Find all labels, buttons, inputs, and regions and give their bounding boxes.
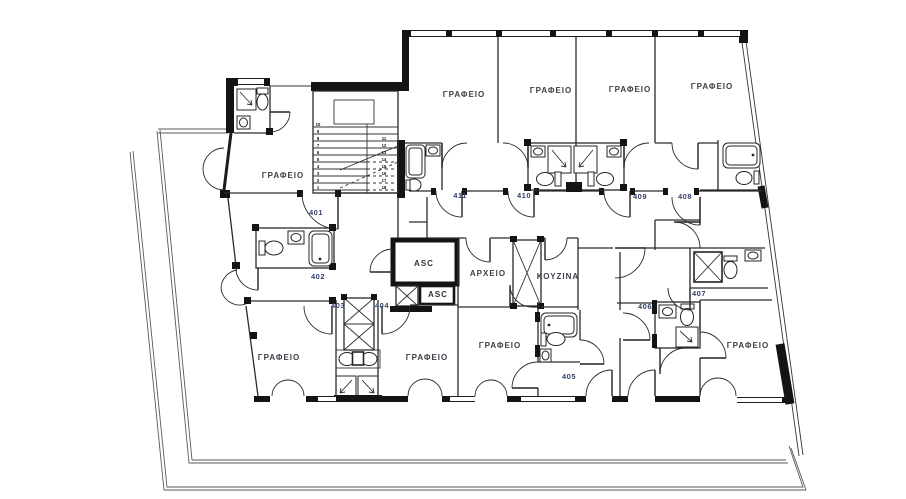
office-408-name: ΓΡΑΦΕΙΟ: [691, 82, 733, 91]
bathtub-icon: [723, 143, 760, 168]
asc-main-label: ASC: [414, 259, 434, 268]
sink-icon: [288, 231, 304, 244]
office-411-name: ΓΡΑΦΕΙΟ: [443, 90, 485, 99]
stair-step-number: 3: [317, 171, 320, 176]
bathtub-icon: [309, 231, 332, 266]
toilet-icon: [736, 171, 759, 185]
corridor-405-406: [578, 197, 700, 398]
room-410-number: 410: [517, 191, 531, 200]
stair-step-number: 13: [382, 150, 387, 155]
bathroom-410-409: [524, 139, 627, 192]
stair-step-number: 4: [317, 164, 320, 169]
room-404-number: 404: [375, 301, 389, 310]
north-facade-windows: [405, 30, 746, 37]
south-facade: [254, 370, 792, 403]
toilet-icon: [259, 241, 283, 255]
office-bl2-name: ΓΡΑΦΕΙΟ: [406, 353, 448, 362]
sink-icon: [659, 305, 676, 318]
east-facade: [739, 30, 803, 456]
bathroom-408: [700, 140, 762, 190]
office-bm-name: ΓΡΑΦΕΙΟ: [479, 341, 521, 350]
bathroom-kitchen: [535, 310, 604, 364]
room-405-number: 405: [562, 372, 576, 381]
room-411-number: 411: [453, 191, 467, 200]
office-br-name: ΓΡΑΦΕΙΟ: [727, 341, 769, 350]
shower-icon: [574, 146, 597, 173]
room-409-number: 409: [633, 192, 647, 201]
stair-step-number: 15: [382, 164, 387, 169]
stair-step-number: 5: [317, 157, 320, 162]
archive-name: ΑΡΧΕΙΟ: [470, 269, 506, 278]
stair-step-number: 1: [317, 185, 320, 190]
service-core-407: [668, 248, 768, 310]
stair-step-number: 14: [382, 157, 387, 162]
toilet-icon: [257, 88, 268, 110]
staircase-step-numbers: 109876543211112131415161718: [316, 122, 387, 190]
sink-icon: [607, 146, 621, 157]
toilet-icon: [406, 179, 421, 191]
stair-step-number: 9: [317, 129, 320, 134]
toilet-icon: [724, 256, 737, 279]
sink-icon: [426, 145, 440, 156]
toilet-icon: [681, 304, 695, 326]
room-407-number: 407: [692, 289, 706, 298]
west-wall-401: [203, 133, 258, 396]
floor-plan-svg: ΓΡΑΦΕΙΟΓΡΑΦΕΙΟΓΡΑΦΕΙΟΓΡΑΦΕΙΟΓΡΑΦΕΙΟ40140…: [0, 0, 906, 499]
office-410-name: ΓΡΑΦΕΙΟ: [530, 86, 572, 95]
sink-icon: [531, 146, 545, 157]
room-408-number: 408: [678, 192, 692, 201]
room-406-number: 406: [638, 302, 652, 311]
asc-small-label: ASC: [428, 290, 448, 299]
room-401-number: 401: [309, 208, 323, 217]
shower-icon: [237, 89, 256, 110]
floor-plan-page: ΓΡΑΦΕΙΟΓΡΑΦΕΙΟΓΡΑΦΕΙΟΓΡΑΦΕΙΟΓΡΑΦΕΙΟ40140…: [0, 0, 906, 499]
room-402-number: 402: [311, 272, 325, 281]
room-403-number: 403: [331, 301, 345, 310]
stair-step-number: 7: [317, 143, 320, 148]
sink-icon: [745, 250, 761, 261]
toilet-icon: [541, 333, 565, 347]
stair-step-number: 12: [382, 143, 387, 148]
stair-step-number: 11: [382, 136, 387, 141]
shower-icon: [358, 376, 378, 398]
stair-step-number: 8: [317, 136, 320, 141]
bathroom-406: [652, 300, 700, 374]
bathroom-411: [405, 143, 442, 191]
stair-step-number: 16: [382, 171, 387, 176]
toilet-icon: [588, 172, 614, 186]
stair-step-number: 10: [316, 122, 321, 127]
sink-icon: [540, 349, 551, 362]
bathroom-top-left: [234, 86, 290, 135]
sink-icon: [237, 116, 250, 129]
stair-step-number: 6: [317, 150, 320, 155]
stair-step-number: 17: [382, 178, 387, 183]
shower-icon: [548, 146, 571, 173]
office-bl1-name: ΓΡΑΦΕΙΟ: [258, 353, 300, 362]
stair-step-number: 18: [382, 185, 387, 190]
shower-icon: [676, 327, 698, 347]
terrace-boundary: [130, 129, 806, 490]
kitchen-name: ΚΟΥΖΙΝΑ: [537, 272, 579, 281]
office-409-name: ΓΡΑΦΕΙΟ: [609, 85, 651, 94]
shower-icon: [336, 376, 356, 398]
toilet-icon: [537, 172, 562, 186]
stair-step-number: 2: [317, 178, 320, 183]
office-401-name: ΓΡΑΦΕΙΟ: [262, 171, 304, 180]
